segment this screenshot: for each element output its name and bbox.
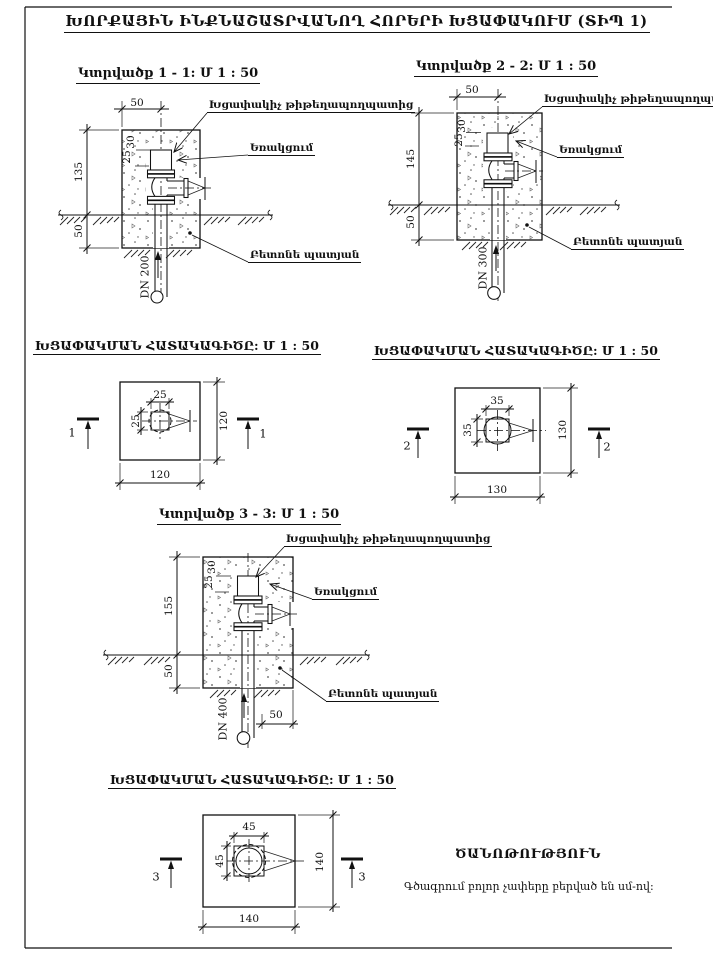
section-1-1-drawing [58,101,273,305]
plan-1-title: ԽՑԱՓԱԿՄԱՆ ՀԱՏԱԿԱԳԻԾԸ: Մ 1 : 50 [33,339,321,355]
label-casing-s3: Բետոնե պատյան [326,688,439,702]
plan-2-title: ԽՑԱՓԱԿՄԱՆ ՀԱՏԱԿԱԳԻԾԸ: Մ 1 : 50 [372,344,660,360]
section-1-1-title: Կտրվածք 1 - 1: Մ 1 : 50 [76,67,260,84]
dim-inner-height-p2: 35 [462,423,474,436]
dim-height-above-s1: 135 [73,162,85,182]
pipe-diameter-s1: DN 200 [140,256,153,299]
dim-inner-height-p3: 45 [214,854,226,867]
dim-height-below-s1: 50 [73,224,85,237]
cut-number-1-right: 1 [259,427,266,440]
dim-height-below-s3: 50 [163,664,175,677]
section-2-2-drawing [388,89,620,301]
label-weld-s2: Եռակցում [557,144,624,158]
label-weld-s1: Եռակցում [248,142,315,156]
cut-number-3-left: 3 [152,870,159,883]
dim-cap-depth-s1: 30 [125,135,137,148]
dim-width-p1: 120 [150,469,170,481]
cut-number-3-right: 3 [358,870,365,883]
dim-inner-height-p1: 25 [130,414,142,427]
dim-height-p2: 130 [557,420,569,440]
dim-cap-depth-s2: 30 [456,119,468,132]
dim-height-p3: 140 [314,852,326,872]
cut-number-1-left: 1 [68,426,75,439]
label-weld-s3: Եռակցում [312,586,379,600]
dim-height-below-s2: 50 [405,215,417,228]
plan-2-drawing [407,383,610,504]
note-title: ԾԱՆՈԹՈՒԹՅՈՒՆ [455,848,601,863]
plan-3-title: ԽՑԱՓԱԿՄԱՆ ՀԱՏԱԿԱԳԻԾԸ: Մ 1 : 50 [108,773,396,789]
drawing-sheet: ԽՈՐՔԱՅԻՆ ԻՆՔՆԱՇԱՏՐՎԱՆՈՂ ՀՈՐԵՐԻ ԽՑԱՓԱԿՈՒՄ… [0,0,713,959]
dim-edge-offset-s3: 50 [269,709,282,721]
dim-height-above-s2: 145 [405,149,417,169]
label-casing-s1: Բետոնե պատյան [248,249,361,263]
dim-cap-height-s3: 25 [203,575,215,588]
label-cap-s2: Խցափակիչ թիթեղապողպատից [542,93,713,107]
dim-cap-height-s2: 25 [453,133,465,146]
dim-width-p3: 140 [239,913,259,925]
label-cap-s3: Խցափակիչ թիթեղապողպատից [284,533,492,547]
plan-3-drawing [160,810,363,934]
label-cap-s1: Խցափակիչ թիթեղապողպատից [207,99,415,113]
pipe-diameter-s2: DN 300 [478,247,491,290]
cut-number-2-right: 2 [603,440,610,453]
dim-height-above-s3: 155 [163,596,175,616]
dim-cap-height-s1: 25 [121,150,133,163]
page-title: ԽՈՐՔԱՅԻՆ ԻՆՔՆԱՇԱՏՐՎԱՆՈՂ ՀՈՐԵՐԻ ԽՑԱՓԱԿՈՒՄ… [63,14,649,33]
label-casing-s2: Բետոնե պատյան [571,236,684,250]
dim-top-width-s2: 50 [465,84,478,96]
dim-top-width-s1: 50 [130,97,143,109]
section-2-2-title: Կտրվածք 2 - 2: Մ 1 : 50 [414,60,598,77]
dim-cap-depth-s3: 30 [206,560,218,573]
section-3-3-drawing [103,547,370,748]
section-3-3-title: Կտրվածք 3 - 3: Մ 1 : 50 [157,508,341,525]
dim-inner-width-p2: 35 [490,395,503,407]
cut-number-2-left: 2 [403,439,410,452]
dim-width-p2: 130 [487,484,507,496]
dimensions [450,383,578,504]
cut-marks [77,419,259,449]
note-text: Գծագրում բոլոր չափերը բերված են սմ-ով: [404,881,654,894]
dim-height-p1: 120 [218,411,230,431]
flow-arrow [155,251,161,260]
dim-inner-width-p3: 45 [242,821,255,833]
dim-inner-width-p1: 25 [153,389,166,401]
pipe-diameter-s3: DN 400 [218,698,231,741]
